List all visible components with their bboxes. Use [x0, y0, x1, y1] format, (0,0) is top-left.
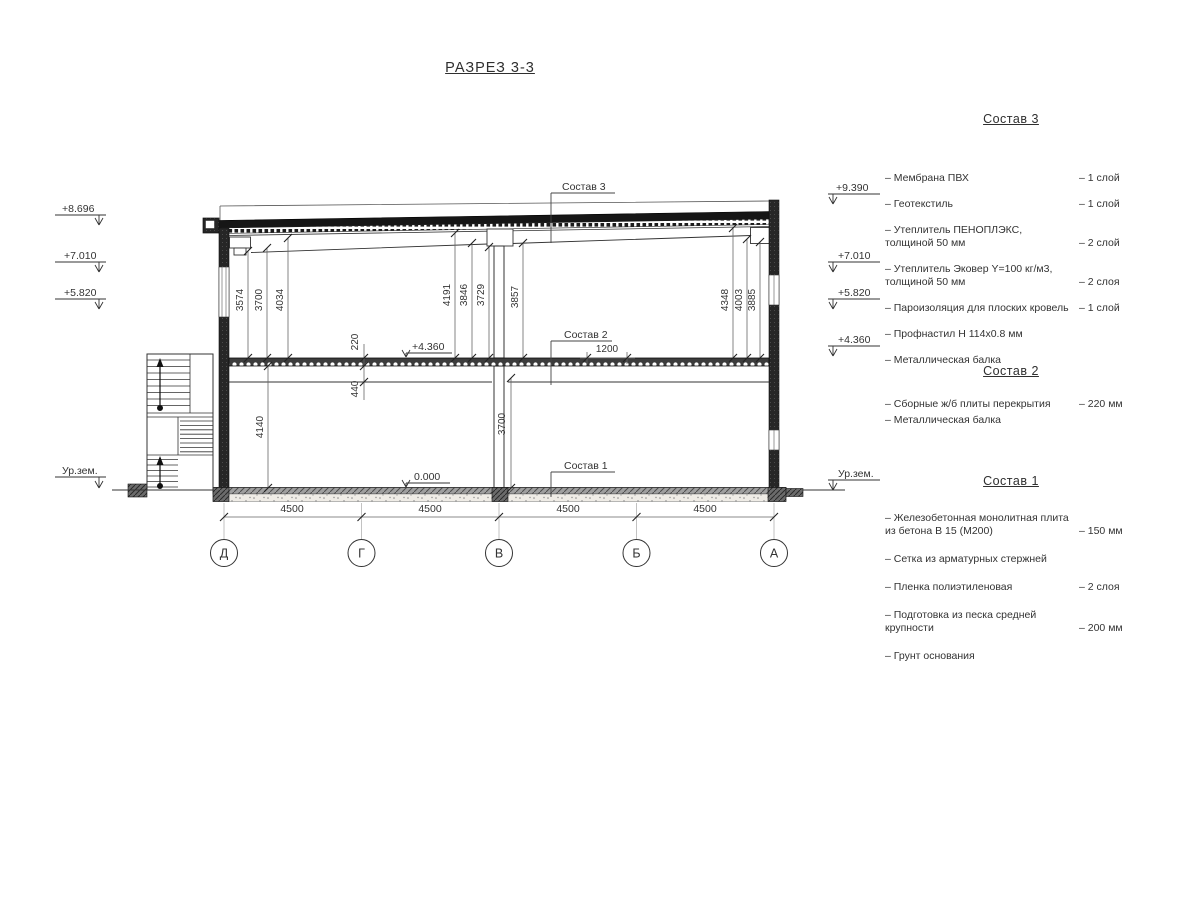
- elevation-label: +7.010: [64, 250, 97, 262]
- elevation-label: +8.696: [62, 203, 95, 215]
- callout-label: Состав 1: [564, 460, 608, 472]
- legend-item-name: – Сетка из арматурных стержней: [885, 553, 1075, 566]
- dim-label: 4003: [734, 288, 745, 311]
- legend-item-qty: – 1 слой: [1075, 198, 1137, 211]
- axis-letter: Д: [220, 547, 229, 561]
- elevation-label: +5.820: [64, 287, 97, 299]
- left-footing-stub: [128, 484, 147, 497]
- legend-item-name: – Металлическая балка: [885, 414, 1075, 427]
- callout-label: Состав 3: [562, 181, 606, 193]
- elevation-label: Ур.зем.: [62, 465, 98, 477]
- legend-section-1: Состав 1 – Железобетонная монолитная пли…: [885, 474, 1137, 678]
- legend-heading: Состав 2: [885, 364, 1137, 378]
- dim-label: 4348: [720, 288, 731, 311]
- callout-label: Состав 2: [564, 329, 608, 341]
- elevation-marks-right: +9.390 +7.010 +5.820 +4.360 Ур.зем.: [828, 182, 880, 490]
- span-labels: 4500 4500 4500 4500: [280, 503, 717, 515]
- dim-label: 1200: [596, 344, 619, 355]
- legend-section-2: Состав 2 – Сборные ж/б плиты перекрытия …: [885, 364, 1137, 430]
- legend-item: – Железобетонная монолитная плита из бет…: [885, 512, 1137, 538]
- legend-item: – Сборные ж/б плиты перекрытия – 220 мм: [885, 398, 1137, 411]
- elevation-label: +9.390: [836, 182, 869, 194]
- legend-item-qty: – 150 мм: [1075, 525, 1137, 538]
- axis-letter: А: [770, 547, 779, 561]
- dim-label: 4191: [442, 283, 453, 306]
- legend-item-name: – Пленка полиэтиленовая: [885, 581, 1075, 594]
- legend-item-qty: – 1 слой: [1075, 172, 1137, 185]
- dim-label: 3729: [476, 283, 487, 306]
- dim-label: 3885: [747, 288, 758, 311]
- legend-item: – Сетка из арматурных стержней: [885, 553, 1137, 566]
- axis-letter: В: [495, 547, 503, 561]
- legend-heading: Состав 3: [885, 112, 1137, 126]
- staircase: [147, 354, 213, 490]
- axis-letters: Д Г В Б А: [220, 547, 779, 561]
- dim-label: 3700: [254, 288, 265, 311]
- legend-item: – Утеплитель Эковер Y=100 кг/м3, толщино…: [885, 263, 1137, 289]
- span-label: 4500: [556, 503, 580, 515]
- legend-item-qty: – 2 слоя: [1075, 276, 1137, 289]
- legend-item: – Подготовка из песка средней крупности …: [885, 609, 1137, 635]
- dim-label: 3574: [235, 288, 246, 311]
- legend-item-qty: – 2 слой: [1075, 237, 1137, 250]
- dim-label: 220: [350, 333, 361, 350]
- legend-item: – Профнастил Н 114х0.8 мм: [885, 328, 1137, 341]
- elevation-label: +5.820: [838, 287, 871, 299]
- legend-item-qty: – 200 мм: [1075, 622, 1137, 635]
- callouts: Состав 3 Состав 2 Состав 1: [551, 181, 615, 497]
- legend-item-name: – Сборные ж/б плиты перекрытия: [885, 398, 1075, 411]
- middle-column-upper: [494, 246, 504, 358]
- legend-item: – Металлическая балка: [885, 414, 1137, 427]
- legend-item-name: – Грунт основания: [885, 650, 1075, 663]
- level-label-zero: 0.000: [414, 471, 440, 483]
- legend-section-3: Состав 3 – Мембрана ПВХ – 1 слой – Геоте…: [885, 112, 1137, 380]
- legend-item: – Утеплитель ПЕНОПЛЭКС, толщиной 50 мм –…: [885, 224, 1137, 250]
- legend-item: – Геотекстиль – 1 слой: [885, 198, 1137, 211]
- legend-item-name: – Пароизоляция для плоских кровель: [885, 302, 1075, 315]
- legend-heading: Состав 1: [885, 474, 1137, 488]
- legend-item-qty: – 220 мм: [1075, 398, 1137, 411]
- legend-item-qty: – 1 слой: [1075, 302, 1137, 315]
- legend-item: – Пленка полиэтиленовая – 2 слоя: [885, 581, 1137, 594]
- span-label: 4500: [693, 503, 717, 515]
- axis-letter: Б: [632, 547, 640, 561]
- legend-item: – Грунт основания: [885, 650, 1137, 663]
- legend-item-name: – Утеплитель Эковер Y=100 кг/м3, толщино…: [885, 263, 1075, 289]
- dim-label: 440: [350, 380, 361, 397]
- dim-label: 3857: [510, 285, 521, 308]
- legend-item-name: – Профнастил Н 114х0.8 мм: [885, 328, 1075, 341]
- legend-item-qty: – 2 слоя: [1075, 581, 1137, 594]
- stair-direction-arrows: [157, 358, 164, 488]
- dim-label: 3700: [497, 412, 508, 435]
- level-label-4360: +4.360: [412, 341, 445, 353]
- dim-label: 3846: [459, 283, 470, 306]
- elevation-label: +4.360: [838, 334, 871, 346]
- legend-item-name: – Геотекстиль: [885, 198, 1075, 211]
- left-wall-window: [219, 267, 229, 317]
- dim-label: 4140: [255, 415, 266, 438]
- legend-item-name: – Подготовка из песка средней крупности: [885, 609, 1075, 635]
- span-label: 4500: [280, 503, 304, 515]
- span-label: 4500: [418, 503, 442, 515]
- legend-item-name: – Мембрана ПВХ: [885, 172, 1075, 185]
- legend-item: – Пароизоляция для плоских кровель – 1 с…: [885, 302, 1137, 315]
- elevation-label: +7.010: [838, 250, 871, 262]
- legend-item-name: – Утеплитель ПЕНОПЛЭКС, толщиной 50 мм: [885, 224, 1075, 250]
- dim-label: 4034: [275, 288, 286, 311]
- axis-letter: Г: [358, 547, 365, 561]
- right-footing-stub: [786, 489, 803, 497]
- elevation-marks-left: +8.696 +7.010 +5.820 Ур.зем.: [55, 203, 106, 488]
- legend-item-name: – Железобетонная монолитная плита из бет…: [885, 512, 1075, 538]
- legend-item: – Мембрана ПВХ – 1 слой: [885, 172, 1137, 185]
- elevation-label: Ур.зем.: [838, 468, 874, 480]
